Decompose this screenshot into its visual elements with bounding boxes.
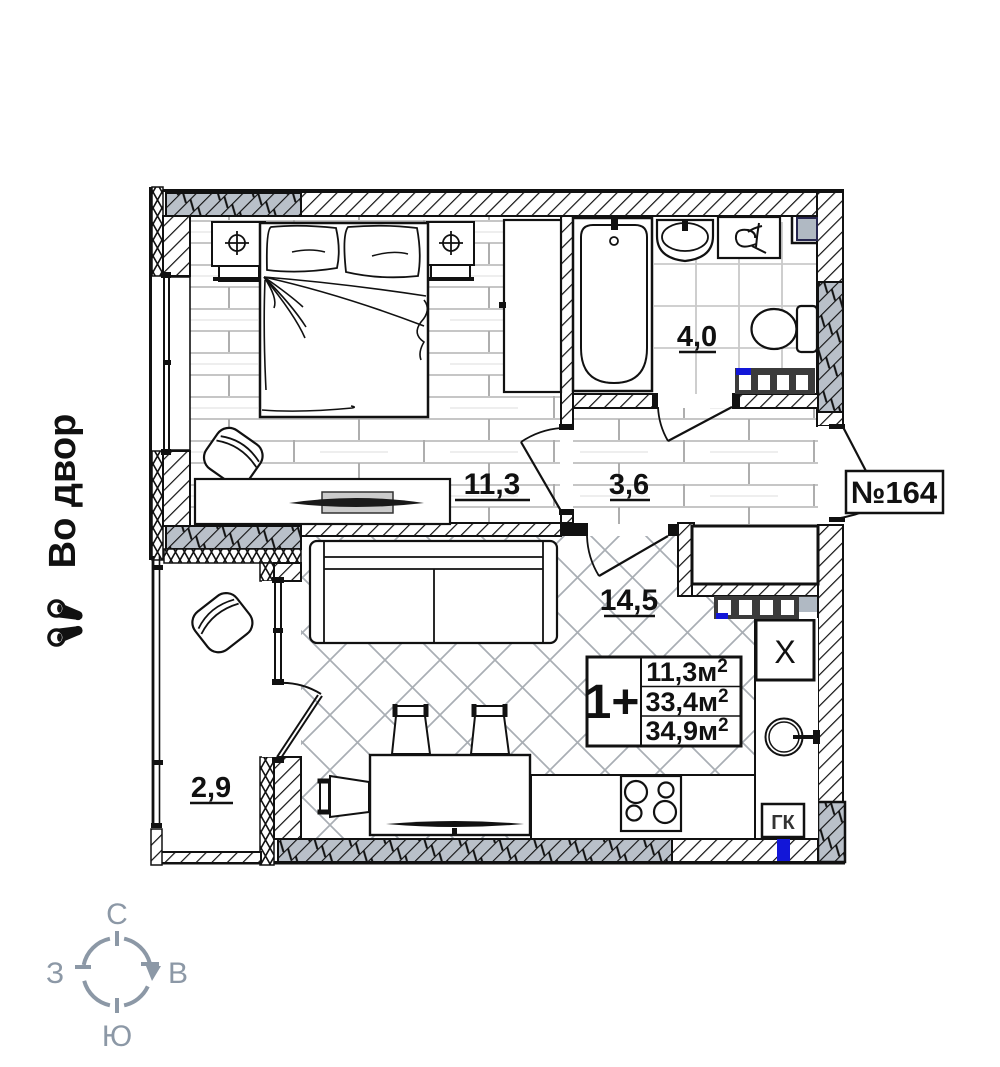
svg-text:14,5: 14,5 — [600, 584, 658, 617]
svg-text:11,3м2: 11,3м2 — [646, 656, 728, 687]
svg-text:Во двор: Во двор — [42, 414, 84, 569]
svg-text:4,0: 4,0 — [677, 321, 717, 353]
svg-text:Ю: Ю — [102, 1020, 132, 1053]
svg-text:3,6: 3,6 — [609, 469, 649, 501]
svg-text:З: З — [46, 957, 64, 990]
svg-text:34,9м2: 34,9м2 — [645, 715, 728, 746]
svg-text:С: С — [106, 898, 128, 931]
svg-text:№164: №164 — [851, 475, 938, 510]
svg-text:11,3: 11,3 — [464, 468, 521, 501]
svg-text:2,9: 2,9 — [191, 772, 231, 804]
svg-text:X: X — [774, 634, 795, 670]
svg-text:ГК: ГК — [771, 812, 795, 834]
svg-text:1+: 1+ — [585, 676, 640, 729]
svg-text:В: В — [168, 957, 188, 990]
svg-text:33,4м2: 33,4м2 — [645, 686, 728, 717]
